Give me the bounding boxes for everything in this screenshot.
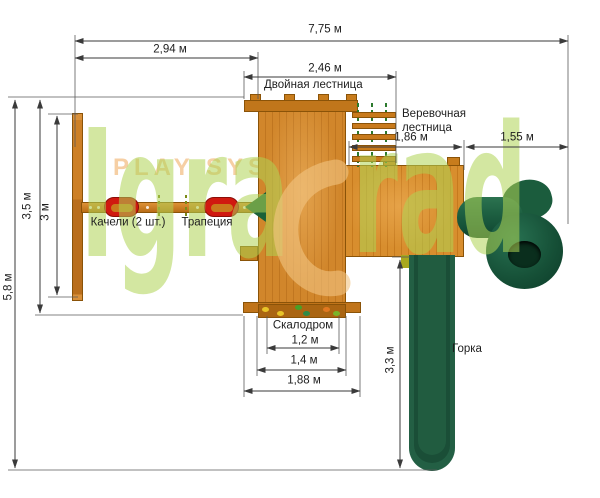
dim-platform-span: 2,46 м — [308, 63, 341, 76]
slide-connector — [401, 255, 409, 268]
swing-seat — [204, 197, 239, 217]
beam-bracket — [245, 192, 266, 222]
climbing-hold — [277, 311, 284, 316]
dim-left-span: 2,94 м — [153, 44, 186, 57]
double-ladder-rail — [244, 100, 358, 112]
main-tower-platform — [258, 110, 346, 306]
label-swings: Качели (2 шт.) — [91, 217, 166, 230]
rope-ladder-rung — [352, 145, 396, 151]
climbing-hold — [303, 311, 310, 316]
rope-ladder-rung — [352, 123, 396, 129]
straight-slide-bed — [418, 255, 446, 455]
label-rope-ladder-line2: лестница — [402, 122, 452, 135]
dim-total-width: 7,75 м — [308, 24, 341, 37]
climbing-hold — [323, 307, 330, 312]
beam-bolt — [89, 206, 92, 209]
climbing-hold — [262, 307, 269, 312]
dim-swing-depth: 3,5 м — [22, 192, 35, 219]
swing-seat — [104, 197, 139, 217]
dim-right-span: 1,55 м — [500, 132, 533, 145]
trapeze-rope — [185, 195, 187, 219]
dim-total-depth: 5,8 м — [3, 273, 16, 300]
rope-ladder-rung — [352, 156, 396, 162]
beam-bolt — [97, 206, 100, 209]
tube-slide-exit-hole — [508, 241, 541, 268]
label-trapeze: Трапеция — [181, 217, 232, 230]
beam-attachment-block — [240, 246, 258, 261]
rope-ladder-rung — [352, 112, 396, 118]
dim-slide-length: 3,3 м — [385, 346, 398, 373]
dim-climb-outer: 1,88 м — [287, 375, 320, 388]
beam-bolt — [146, 206, 149, 209]
climbing-hold — [295, 305, 302, 310]
dim-climb-inner: 1,2 м — [291, 335, 318, 348]
second-tower-platform — [345, 165, 464, 257]
playground-dimension-diagram: PLAY SYSTEM Igra — [0, 0, 600, 498]
beam-bolt — [243, 206, 246, 209]
trapeze-rope — [158, 195, 160, 219]
climbing-hold — [333, 311, 340, 316]
label-climbing-wall: Скалодром — [273, 320, 333, 333]
dim-climb-mid: 1,4 м — [290, 355, 317, 368]
rope-ladder-rung — [352, 134, 396, 140]
label-rope-ladder-line1: Веревочная — [402, 108, 466, 121]
dim-beam-span: 3 м — [40, 203, 53, 221]
beam-bolt — [196, 206, 199, 209]
label-slide: Горка — [452, 343, 482, 356]
label-double-ladder: Двойная лестница — [264, 79, 363, 92]
